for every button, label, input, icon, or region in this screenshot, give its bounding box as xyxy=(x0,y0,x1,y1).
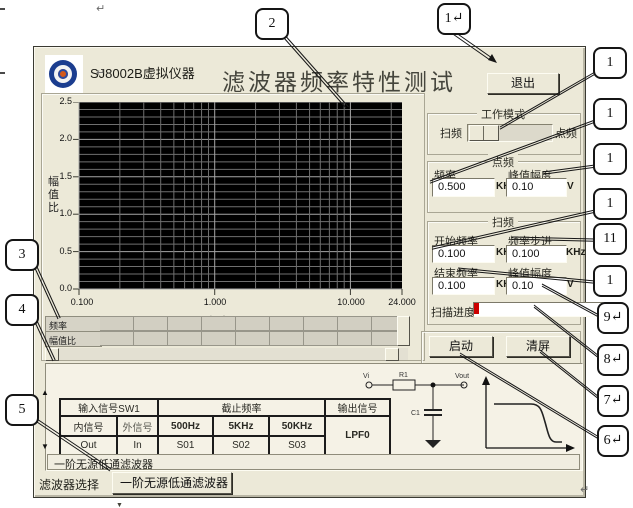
circuit-c1-label: C1 xyxy=(411,410,420,417)
table-cell: S02 xyxy=(213,436,269,455)
readout-cell xyxy=(338,331,372,346)
circuit-diagram: Vi R1 Vout C1 xyxy=(345,370,578,454)
sweep-step-input[interactable]: 0.100 xyxy=(506,245,567,263)
table-subheader: 50KHz xyxy=(269,416,325,436)
y-tick-label: 0.5 xyxy=(44,246,72,256)
sweep-group-label: 扫频 xyxy=(488,214,518,230)
readout-row-values xyxy=(100,331,406,346)
chevron-down-icon: ▼ xyxy=(113,502,123,508)
callout-left-4: 4 xyxy=(5,294,39,326)
y-axis-title: 幅值比 xyxy=(48,176,61,215)
status-text: 一阶无源低通滤波器 xyxy=(54,456,153,472)
y-tick-label: 2.5 xyxy=(44,96,72,106)
response-curve-axes xyxy=(486,382,569,448)
readout-cell xyxy=(338,316,372,331)
callout-1-top: 1↵ xyxy=(437,3,471,35)
ground-icon xyxy=(425,440,441,448)
circuit-vi-label: Vi xyxy=(363,373,370,380)
callout-right-9: 9↵ xyxy=(597,302,629,334)
readout-cell xyxy=(134,331,168,346)
callout-2: 2 xyxy=(255,8,289,40)
sweep-step-unit: KHz xyxy=(566,247,585,258)
callout-right-2: 1 xyxy=(593,98,627,130)
filter-select-label: 滤波器选择 xyxy=(39,476,99,493)
table-subheader: 内信号 xyxy=(60,416,117,436)
filter-spec-table: 输入信号SW1 截止频率 输出信号 内信号 外信号 500Hz 5KHz 50K… xyxy=(59,398,391,456)
x-tick-label: 1.000 xyxy=(193,297,237,307)
point-amp-input[interactable]: 0.10 xyxy=(506,178,567,197)
readout-row-label: 幅值比 xyxy=(45,331,102,347)
point-amp-unit: V xyxy=(567,181,574,192)
logo-atom-icon xyxy=(58,69,68,79)
y-tick-label: 0.0 xyxy=(44,283,72,293)
sweep-progress-bar xyxy=(473,302,603,317)
table-header-input: 输入信号SW1 xyxy=(60,399,158,416)
readout-cell xyxy=(202,331,236,346)
frequency-response-plot xyxy=(73,102,409,295)
readout-table: 频率 幅值比 xyxy=(45,316,408,346)
readout-cell xyxy=(100,316,134,331)
page-title: 滤波器频率特性测试 xyxy=(194,63,484,97)
readout-cell xyxy=(168,331,202,346)
callout-right-8: 8↵ xyxy=(597,344,629,376)
readout-scrollbar[interactable] xyxy=(45,348,408,360)
paragraph-return-mark: ↵ xyxy=(96,66,105,79)
panel-scroll-up-icon[interactable]: ▲ xyxy=(41,388,49,397)
callout-left-3: 3 xyxy=(5,239,39,271)
y-tick-label: 2.0 xyxy=(44,133,72,143)
mode-point-label: 点频 xyxy=(555,125,577,141)
callout-right-7: 7↵ xyxy=(597,385,629,417)
filter-select-dropdown[interactable]: 一阶无源低通滤波器 ▼ xyxy=(112,472,232,494)
readout-scroll-box[interactable] xyxy=(397,316,410,346)
x-tick-label: 0.100 xyxy=(60,297,104,307)
brand-text: SJ8002B虚拟仪器 xyxy=(90,63,195,82)
lowpass-response-curve xyxy=(494,404,562,442)
readout-cell xyxy=(100,331,134,346)
x-tick-label: 10.000 xyxy=(329,297,373,307)
axis-right-arrow-icon xyxy=(566,444,575,452)
filter-info-panel: 输入信号SW1 截止频率 输出信号 内信号 外信号 500Hz 5KHz 50K… xyxy=(45,363,583,471)
progress-fill xyxy=(474,303,479,314)
table-subheader: 5KHz xyxy=(213,416,269,436)
mode-slider[interactable] xyxy=(467,124,553,142)
app-logo xyxy=(45,55,83,95)
table-subheader: 500Hz xyxy=(158,416,213,436)
start-button[interactable]: 启动 xyxy=(429,336,493,357)
app-window: SJ8002B虚拟仪器 滤波器频率特性测试 退出 2.5 2.0 1.5 1.0… xyxy=(33,46,586,498)
sweep-amp-input[interactable]: 0.10 xyxy=(506,277,567,295)
callout-right-6b: 6↵ xyxy=(597,425,629,457)
readout-cell xyxy=(304,331,338,346)
panel-scroll-down-icon[interactable]: ▼ xyxy=(41,442,49,451)
x-tick-label: 24.000 xyxy=(380,297,424,307)
scroll-right-button[interactable] xyxy=(385,348,399,361)
document-page: ↵ ↵ ↵ SJ8002B虚拟仪器 滤波器频率特性测试 退出 2.5 2.0 1… xyxy=(0,0,633,508)
sweep-amp-unit: V xyxy=(567,279,574,290)
page-edge-mark xyxy=(0,72,5,74)
filter-select-value: 一阶无源低通滤波器 xyxy=(113,476,228,490)
callout-right-11: 11 xyxy=(593,223,627,255)
readout-cell xyxy=(202,316,236,331)
callout-right-1: 1 xyxy=(593,47,627,79)
callout-right-6: 1 xyxy=(593,265,627,297)
table-cell: S03 xyxy=(269,436,325,455)
readout-cell xyxy=(270,316,304,331)
readout-row-values xyxy=(100,316,406,331)
mode-sweep-label: 扫频 xyxy=(440,125,462,141)
slider-thumb-line xyxy=(483,126,484,140)
callout-left-5: 5 xyxy=(5,394,39,426)
point-freq-input[interactable]: 0.500 xyxy=(432,178,495,197)
table-subheader: 外信号 xyxy=(117,416,158,436)
paragraph-return-mark: ↵ xyxy=(96,2,105,15)
readout-cell xyxy=(236,316,270,331)
table-cell: S01 xyxy=(158,436,213,455)
readout-cell xyxy=(168,316,202,331)
callout-right-4: 1 xyxy=(593,188,627,220)
scroll-left-button[interactable] xyxy=(45,348,59,361)
readout-cell xyxy=(304,316,338,331)
callout-right-3: 1 xyxy=(593,143,627,175)
sweep-start-input[interactable]: 0.100 xyxy=(432,245,495,263)
readout-cell xyxy=(270,331,304,346)
mode-slider-thumb[interactable] xyxy=(469,125,499,141)
page-edge-mark xyxy=(0,8,5,10)
work-mode-label: 工作模式 xyxy=(477,106,529,122)
circuit-vout-label: Vout xyxy=(455,373,469,380)
axis-up-arrow-icon xyxy=(482,376,490,385)
readout-row-label: 频率 xyxy=(45,316,102,332)
status-strip: 一阶无源低通滤波器 xyxy=(47,454,580,470)
clear-button[interactable]: 清屏 xyxy=(506,336,570,357)
circuit-r1-label: R1 xyxy=(399,372,408,379)
progress-label: 扫描进度 xyxy=(431,304,475,320)
table-cell: In xyxy=(117,436,158,455)
sweep-end-input[interactable]: 0.100 xyxy=(432,277,495,295)
table-cell: Out xyxy=(60,436,117,455)
readout-cell xyxy=(134,316,168,331)
paragraph-return-mark: ↵ xyxy=(580,483,589,496)
readout-cell xyxy=(236,331,270,346)
exit-button[interactable]: 退出 xyxy=(487,73,559,94)
table-header-cutoff: 截止频率 xyxy=(158,399,325,416)
